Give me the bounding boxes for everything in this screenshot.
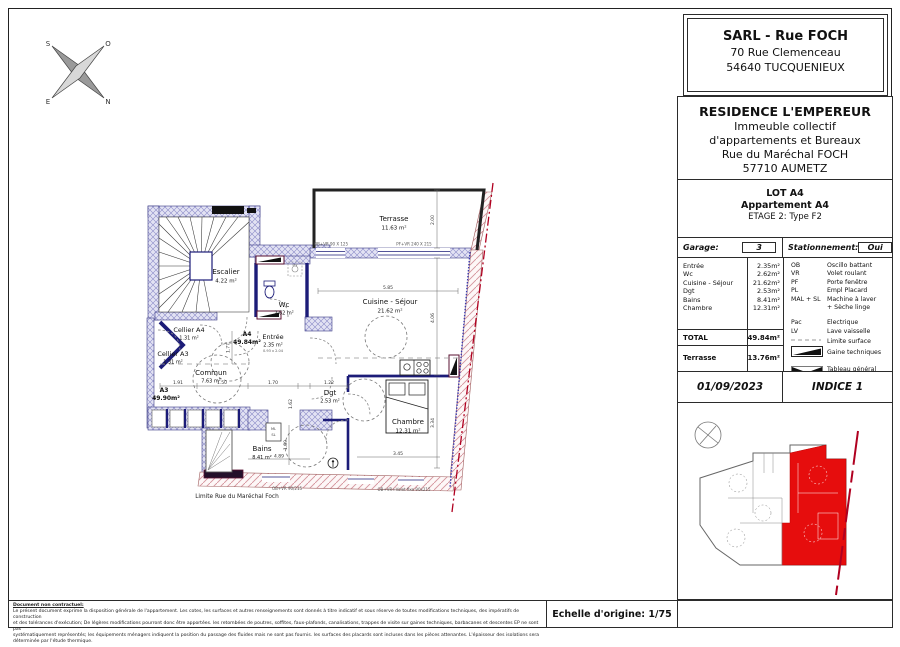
- key-plan-svg: [678, 403, 892, 599]
- entree-door-note: 0.93 x 2.04: [263, 349, 284, 353]
- room-chambre-name: Chambre: [392, 418, 424, 426]
- total-row: TOTAL49.84m²: [678, 329, 783, 345]
- svg-text:1.89: 1.89: [283, 440, 289, 450]
- empty-bottom-right-box: [677, 600, 893, 628]
- surface-column: Entrée2.35m² Wc2.62m² Cuisine - Séjour21…: [678, 258, 783, 371]
- stationnement-value: Oui: [858, 242, 892, 253]
- garage-value: 3: [742, 242, 776, 253]
- disclaimer-box: Document non contractuel: Le présent doc…: [8, 600, 547, 628]
- room-cuisine-area: 21.62 m²: [377, 308, 402, 315]
- residence-line-2: d'appartements et Bureaux: [678, 134, 892, 147]
- disclaimer-line-1: Le présent document exprime la dispositi…: [13, 609, 519, 620]
- residence-line-4: 57710 AUMETZ: [678, 162, 892, 175]
- floor-plan-svg: S O E N: [0, 0, 677, 636]
- garage-row-box: Garage: 3 Stationnement: Oui: [677, 237, 893, 258]
- garage-label: Garage:: [678, 243, 742, 252]
- unit-a4-area: 49.84m²: [233, 339, 261, 346]
- stationnement-label: Stationnement:: [782, 238, 858, 257]
- scale-label: Echelle d'origine: 1/75: [547, 601, 677, 627]
- room-cellier-a4-name: Cellier A4: [173, 326, 204, 334]
- room-wc-area: 2.62 m²: [274, 311, 294, 317]
- surface-row: Wc2.62m²: [678, 270, 783, 278]
- legend-row: PacElectrique: [784, 319, 894, 327]
- room-terrasse-name: Terrasse: [379, 215, 409, 223]
- room-escalier-area: 4.22 m²: [215, 278, 237, 285]
- lot-number: LOT A4: [678, 188, 892, 199]
- room-entree-name: Entrée: [262, 333, 283, 341]
- window-openings: [316, 248, 450, 258]
- disclaimer-heading: Document non contractuel:: [13, 603, 84, 608]
- window-label-4: OB+VR+Volet fixe 90x215: [378, 487, 431, 492]
- compass-bottom-left: E: [46, 98, 50, 106]
- disclaimer-line-3: systématiquement représentés; les équipe…: [13, 633, 539, 644]
- company-box-outer: SARL - Rue FOCH 70 Rue Clemenceau 54640 …: [683, 14, 888, 96]
- room-cellier-a4-area: 1.31 m²: [179, 336, 199, 342]
- indice-label: INDICE 1: [783, 372, 892, 402]
- svg-text:1.62: 1.62: [288, 399, 294, 409]
- staircase: [159, 206, 256, 312]
- compass-top-left: S: [46, 40, 51, 48]
- highlighted-unit-a4: [782, 445, 846, 565]
- svg-text:1.91: 1.91: [173, 380, 183, 386]
- surface-row: Entrée2.35m²: [678, 262, 783, 270]
- surface-row: Cuisine - Séjour21.62m²: [678, 279, 783, 287]
- residence-line-1: Immeuble collectif: [678, 120, 892, 133]
- unit-a3-name: A3: [160, 387, 169, 394]
- date-indice-box: 01/09/2023 INDICE 1: [677, 371, 893, 403]
- legend-row: + Sèche linge: [784, 304, 894, 312]
- unit-labels: A4 49.84m² A3 49.90m²: [152, 331, 261, 402]
- company-box-inner: SARL - Rue FOCH 70 Rue Clemenceau 54640 …: [687, 18, 884, 92]
- room-bains-name: Bains: [252, 445, 271, 453]
- room-cellier-a3-name: Cellier A3: [157, 350, 188, 358]
- room-cellier-a3-area: 1.31 m²: [163, 360, 183, 366]
- disclaimer-line-2: et des tolérances d'exécution; De légère…: [13, 621, 538, 632]
- appliance-ml: ML: [271, 427, 276, 431]
- residence-name: RESIDENCE L'EMPEREUR: [678, 104, 892, 119]
- gaine-techniques-icon: [791, 346, 823, 357]
- surface-row: Bains8.41m²: [678, 296, 783, 304]
- room-commun-area: 7.63 m²: [201, 379, 221, 385]
- legend-row: VRVolet roulant: [784, 270, 894, 278]
- surface-row: Dgt2.53m²: [678, 287, 783, 295]
- compass-top-right: O: [105, 40, 111, 48]
- lot-box: LOT A4 Appartement A4 ETAGE 2: Type F2: [677, 179, 893, 238]
- company-address-2: 54640 TUCQUENIEUX: [688, 61, 883, 74]
- residence-line-3: Rue du Maréchal FOCH: [678, 148, 892, 161]
- appliance-lav: lav: [292, 263, 297, 267]
- room-dgt-area: 2.53 m²: [320, 399, 340, 405]
- company-name: SARL - Rue FOCH: [688, 29, 883, 44]
- window-label-3: OB+VR 90/215: [272, 486, 303, 491]
- terrasse-row: Terrasse13.76m²: [678, 345, 783, 373]
- svg-text:2.00: 2.00: [430, 215, 436, 225]
- street-limit-label: Limite Rue du Maréchal Foch: [195, 493, 279, 500]
- company-address-1: 70 Rue Clemenceau: [688, 46, 883, 59]
- room-escalier-name: Escalier: [212, 268, 239, 276]
- surface-row: Chambre12.31m²: [678, 304, 783, 312]
- room-entree-area: 2.35 m²: [263, 343, 283, 349]
- legend-row-dash: Limite surface: [784, 337, 894, 345]
- room-chambre-area: 12.31 m²: [395, 428, 420, 435]
- svg-text:4.06: 4.06: [430, 313, 436, 323]
- svg-text:1.77: 1.77: [226, 343, 232, 353]
- compass-rose: S O E N: [46, 40, 111, 106]
- legend-row: MAL + SLMachine à laver: [784, 296, 894, 304]
- legend-row-wedge: Gaine techniques: [784, 346, 894, 359]
- unit-a4-name: A4: [243, 331, 252, 338]
- svg-text:3.34: 3.34: [430, 418, 436, 428]
- room-commun-name: Commun: [195, 369, 227, 377]
- window-label-2: PF+VR 240 X 215: [396, 242, 432, 247]
- limite-surface-icon: [791, 337, 821, 343]
- room-dgt-name: Dgt: [324, 389, 337, 397]
- legend-row: OBOscillo battant: [784, 262, 894, 270]
- svg-text:1.70: 1.70: [268, 380, 278, 386]
- legend-row: PLEmpl Placard: [784, 287, 894, 295]
- legend-row: PFPorte fenêtre: [784, 279, 894, 287]
- svg-text:3.45: 3.45: [393, 451, 403, 457]
- lot-apartment: Appartement A4: [678, 200, 892, 211]
- appliance-sl: SL: [271, 433, 275, 437]
- legend-column: OBOscillo battant VRVolet roulant PFPort…: [783, 258, 894, 371]
- room-bains-area: 8.41 m²: [252, 455, 272, 461]
- room-terrasse-area: 11.63 m²: [381, 225, 406, 232]
- window-label-1: OB+VR 90 X 125: [314, 242, 348, 247]
- gaine-technique-symbols: [256, 256, 459, 377]
- storage-boxes: [152, 409, 239, 428]
- legend-row: LVLave vaisselle: [784, 328, 894, 336]
- key-plan-box: [677, 402, 893, 600]
- svg-text:5.85: 5.85: [383, 285, 393, 291]
- scale-box: Echelle d'origine: 1/75: [546, 600, 678, 628]
- compass-bottom-right: N: [105, 98, 110, 106]
- lot-etage: ETAGE 2: Type F2: [678, 212, 892, 222]
- residence-box: RESIDENCE L'EMPEREUR Immeuble collectif …: [677, 96, 893, 180]
- svg-text:1.22: 1.22: [324, 380, 334, 386]
- room-cuisine-name: Cuisine - Séjour: [363, 298, 418, 306]
- svg-text:4.89: 4.89: [274, 454, 284, 460]
- unit-a3-area: 49.90m²: [152, 395, 180, 402]
- surface-legend-table: Entrée2.35m² Wc2.62m² Cuisine - Séjour21…: [677, 257, 893, 372]
- architectural-drawing-sheet: { "title_block": { "company": {"name": "…: [0, 0, 900, 636]
- drawing-date: 01/09/2023: [678, 372, 782, 402]
- room-wc-name: Wc: [279, 301, 290, 309]
